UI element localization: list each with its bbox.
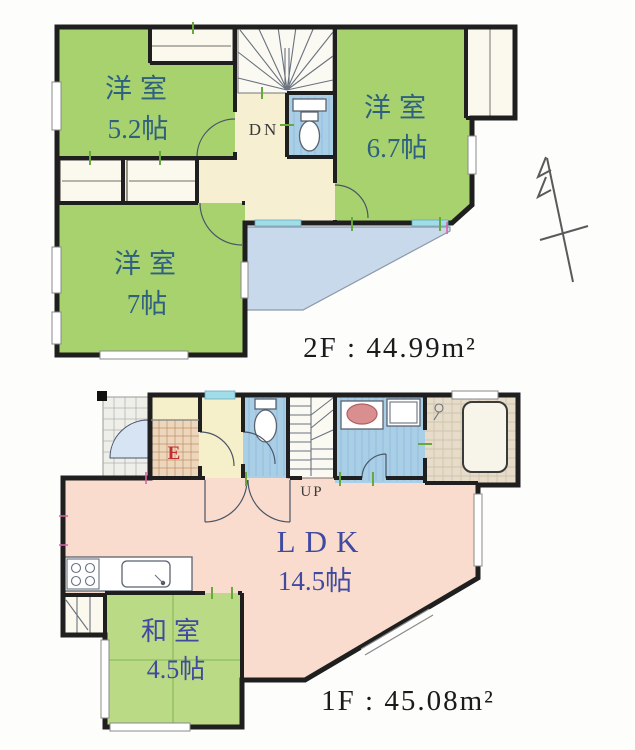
floor-plan-2f: 洋室 5.2帖 洋室 6.7帖 洋室 7帖 DN 2F : 44.99m²	[52, 22, 515, 364]
room-size-label: 5.2帖	[108, 114, 169, 144]
closet-2f-left-b	[127, 160, 197, 203]
stairs-up-label: UP	[300, 484, 323, 500]
stairs-down-label: DN	[249, 120, 280, 139]
floor-area-label-2f: 2F : 44.99m²	[303, 332, 477, 364]
stairs-down	[238, 27, 333, 93]
washbasin-icon	[341, 401, 383, 429]
closet-2f-top	[150, 29, 233, 63]
window	[474, 494, 482, 566]
floor-plan-svg: 洋室 5.2帖 洋室 6.7帖 洋室 7帖 DN 2F : 44.99m²	[0, 0, 635, 750]
window	[205, 391, 235, 399]
north-arrow-icon	[538, 157, 588, 282]
storage-cabinet	[64, 596, 104, 634]
room-western-7	[57, 203, 245, 355]
floor-plan-page: 洋室 5.2帖 洋室 6.7帖 洋室 7帖 DN 2F : 44.99m²	[0, 0, 635, 750]
room-label: 洋室	[114, 249, 184, 279]
room-label: 和室	[141, 617, 207, 646]
room-label: 洋室	[364, 93, 434, 123]
room-size-label: 6.7帖	[367, 133, 428, 163]
closet-2f-left-a	[60, 160, 123, 203]
window	[110, 723, 190, 731]
floor-area-label-1f: 1F : 45.08m²	[321, 685, 495, 717]
balcony	[245, 227, 450, 310]
window	[468, 136, 476, 174]
window	[412, 220, 448, 226]
window	[52, 247, 61, 293]
kitchen-counter	[65, 557, 192, 591]
washing-machine-icon	[387, 399, 420, 426]
room-label: LDK	[277, 524, 368, 559]
room-western-6-7	[335, 27, 470, 223]
window	[241, 262, 248, 298]
corner-post	[97, 391, 107, 401]
window	[52, 82, 61, 130]
room-size-label: 14.5帖	[278, 566, 352, 596]
window	[100, 351, 188, 359]
bathtub-icon	[463, 402, 507, 472]
window	[52, 312, 61, 344]
room-size-label: 7帖	[127, 289, 168, 319]
window	[452, 391, 498, 399]
room-label: 洋室	[105, 74, 175, 104]
window	[255, 220, 301, 226]
floor-plan-1f: LDK 14.5帖 和室 4.5帖 E UP 1F : 45.08m²	[59, 391, 518, 731]
closet-2f-right	[466, 27, 515, 118]
window	[101, 640, 109, 718]
kitchen-sink-icon	[122, 561, 170, 587]
entrance-label: E	[168, 443, 181, 464]
room-size-label: 4.5帖	[147, 655, 206, 684]
